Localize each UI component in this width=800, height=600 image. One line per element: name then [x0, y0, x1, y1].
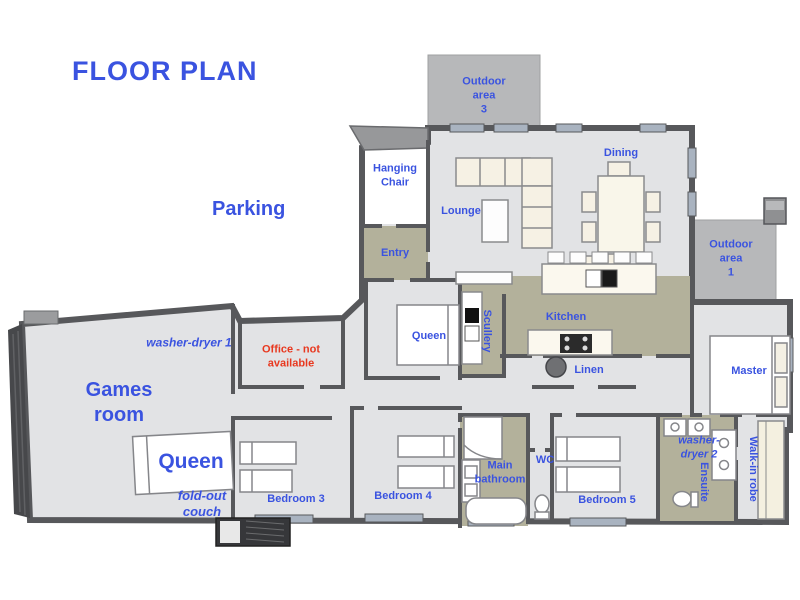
label-ensuite: Ensuite [696, 462, 710, 502]
label-washer-dryer-2: washer- dryer 2 [678, 434, 720, 462]
basin-icon [720, 461, 729, 470]
label-outdoor-area-3: Outdoor area 3 [462, 75, 505, 116]
dining-chair-icon [646, 192, 660, 212]
label-lounge: Lounge [441, 205, 481, 219]
shower-icon [464, 417, 502, 459]
sofa-chaise-icon [522, 186, 552, 248]
dining-chair-icon [608, 162, 630, 176]
window-icon [640, 124, 666, 132]
scullery-sink-icon [465, 326, 479, 341]
bed-single-icon [398, 436, 454, 457]
window-icon [570, 518, 626, 526]
label-fold-out-couch: fold-out couch [178, 488, 226, 521]
label-bedroom-4: Bedroom 4 [374, 490, 431, 504]
wardrobe-icon [758, 421, 784, 519]
dining-table-icon [598, 176, 644, 252]
label-wc: WC [536, 454, 554, 468]
page-title: FLOOR PLAN [72, 56, 258, 87]
label-hanging-chair: Hanging Chair [373, 162, 417, 190]
scullery-sink-icon [465, 308, 479, 323]
window-icon [688, 148, 696, 178]
island-sink-icon [602, 270, 617, 287]
pillow-icon [775, 343, 787, 373]
label-queen-games: Queen [158, 449, 223, 475]
heat-pump-unit [216, 518, 290, 546]
label-games-room: Games room [86, 378, 153, 428]
pillow-icon [775, 377, 787, 407]
stove-icon [560, 334, 592, 353]
window-icon [688, 192, 696, 216]
window-icon [365, 514, 423, 522]
bar-stool-icon [548, 252, 564, 263]
bed-single-icon [398, 466, 454, 488]
bed-single-icon [556, 467, 620, 492]
toilet-icon [535, 495, 549, 513]
label-linen: Linen [574, 364, 603, 378]
label-queen-bedroom: Queen [412, 330, 446, 344]
label-entry: Entry [381, 247, 409, 261]
hot-water-cylinder-icon [546, 357, 566, 377]
window-icon [494, 124, 528, 132]
window-icon [556, 124, 582, 132]
label-kitchen: Kitchen [546, 311, 586, 325]
bed-single-icon [240, 442, 296, 464]
label-bedroom-3: Bedroom 3 [267, 493, 324, 507]
label-dining: Dining [604, 147, 638, 161]
label-outdoor-area-1: Outdoor area 1 [709, 238, 752, 279]
label-office: Office - not available [262, 343, 320, 371]
bar-stool-icon [592, 252, 608, 263]
sofa-icon [456, 158, 530, 186]
sofa-corner-icon [522, 158, 552, 186]
dining-chair-icon [582, 192, 596, 212]
label-scullery: Scullery [479, 310, 493, 353]
label-walk-in-robe: Walk-in robe [745, 436, 759, 502]
toilet-tank-icon [535, 512, 549, 519]
bathtub-icon [466, 498, 526, 524]
island-sink-icon [586, 270, 601, 287]
bar-stool-icon [614, 252, 630, 263]
window-icon [450, 124, 484, 132]
tv-unit-icon [456, 272, 512, 284]
basin-icon [720, 439, 729, 448]
label-washer-dryer-1: washer-dryer 1 [146, 336, 231, 351]
dining-chair-icon [646, 222, 660, 242]
label-bedroom-5: Bedroom 5 [578, 494, 635, 508]
label-main-bathroom: Main bathroom [475, 459, 526, 487]
dining-chair-icon [582, 222, 596, 242]
floor-plan-drawing [0, 0, 800, 600]
bar-stool-icon [636, 252, 652, 263]
coffee-table-icon [482, 200, 508, 242]
toilet-icon [673, 492, 691, 507]
label-parking: Parking [212, 197, 285, 222]
bed-single-icon [240, 470, 292, 492]
porch-roof [350, 126, 428, 150]
bar-stool-icon [570, 252, 586, 263]
label-master: Master [731, 365, 766, 379]
bed-single-icon [556, 437, 620, 461]
walk-in-robe-fittings [758, 421, 784, 519]
floor-plan-canvas: FLOOR PLAN Parking Outdoor area 3 Outdoo… [0, 0, 800, 600]
